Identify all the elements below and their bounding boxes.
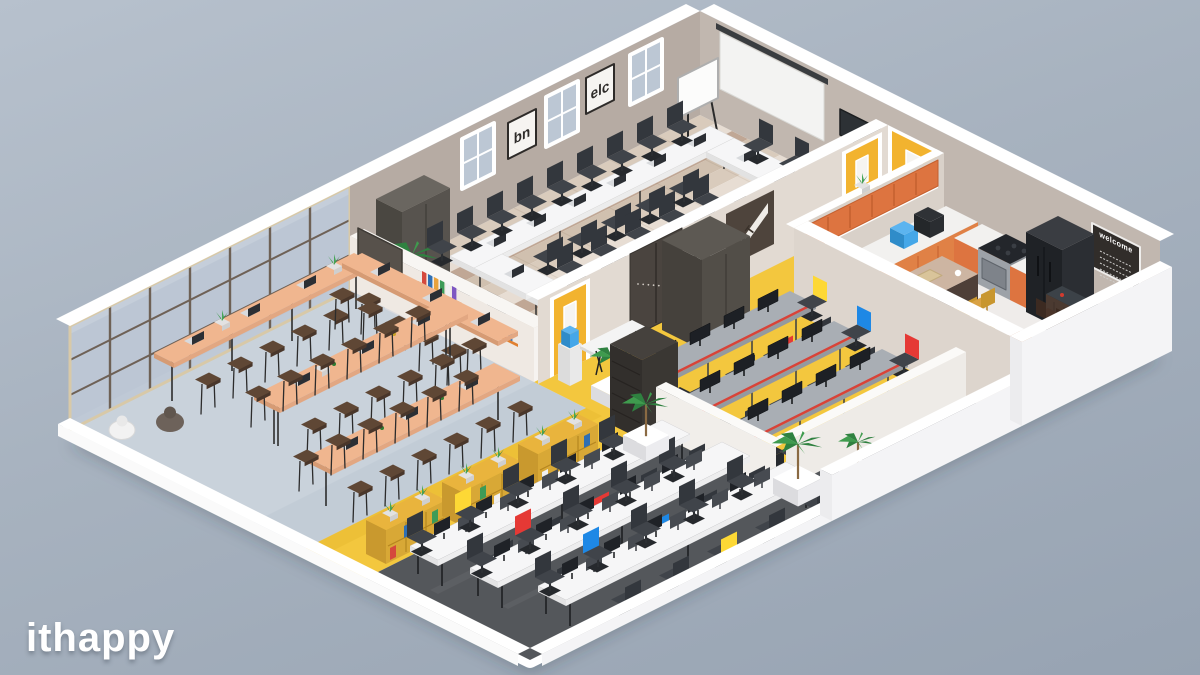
isometric-office-illustration: bnelcwelcomeART ithappy xyxy=(0,0,1200,675)
watermark-text: ithappy xyxy=(26,616,175,661)
office-floorplan-scene: bnelcwelcomeART xyxy=(0,0,1200,675)
water-cooler xyxy=(558,326,582,386)
